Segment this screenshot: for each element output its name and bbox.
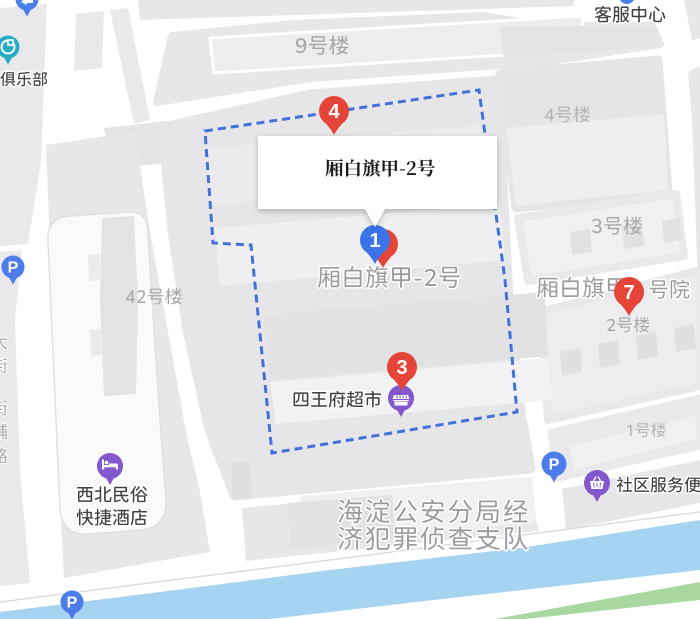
- svg-text:P: P: [67, 595, 78, 612]
- svg-text:4: 4: [328, 101, 340, 123]
- svg-text:P: P: [8, 260, 19, 277]
- svg-text:P: P: [549, 457, 560, 474]
- svg-text:3: 3: [396, 357, 407, 379]
- svg-text:7: 7: [623, 282, 634, 304]
- svg-text:1: 1: [369, 230, 380, 252]
